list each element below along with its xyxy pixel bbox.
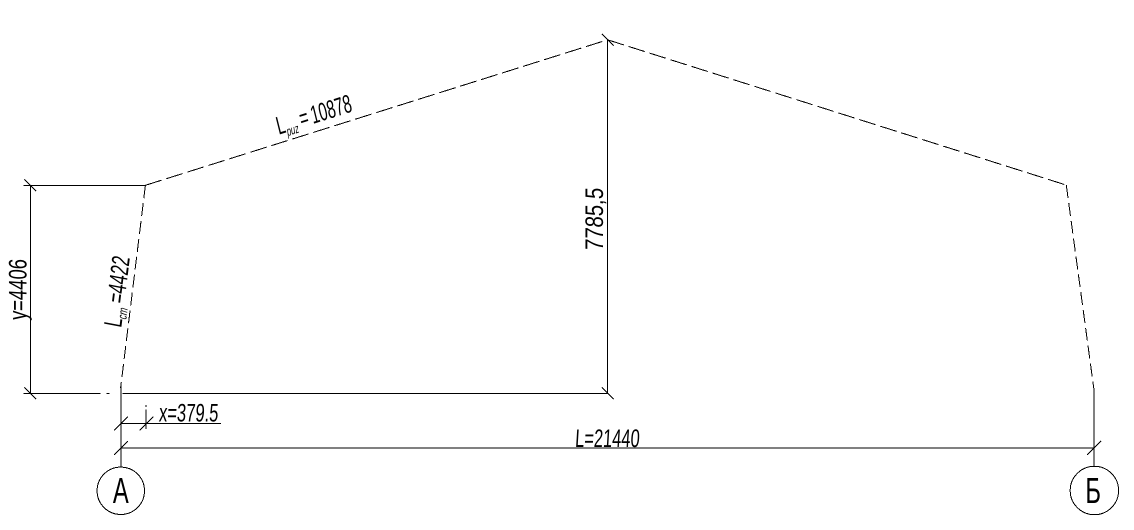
svg-text:А: А: [113, 471, 129, 511]
svg-text:Б: Б: [1085, 471, 1101, 511]
svg-text:y=4406: y=4406: [4, 258, 33, 321]
svg-text:L=21440: L=21440: [574, 424, 640, 452]
svg-text:7785,5: 7785,5: [580, 187, 609, 251]
svg-text:x=379.5: x=379.5: [158, 399, 219, 427]
